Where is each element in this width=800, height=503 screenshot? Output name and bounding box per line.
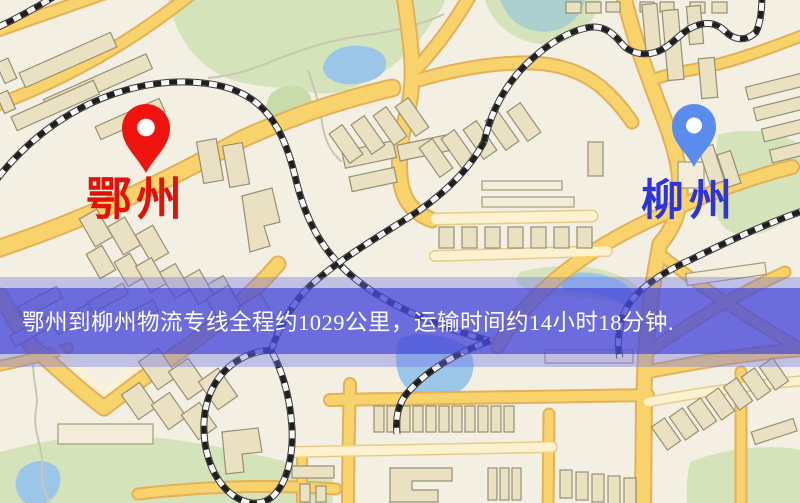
origin-city-label: 鄂州 xyxy=(86,177,186,223)
destination-city-label: 柳州 xyxy=(641,180,737,223)
map-background xyxy=(0,0,800,503)
route-banner-text: 鄂州到柳州物流专线全程约1029公里，运输时间约14小时18分钟. xyxy=(0,305,674,337)
origin-pin-hole xyxy=(137,119,155,137)
logistics-route-map: 鄂州 柳州 鄂州到柳州物流专线全程约1029公里，运输时间约14小时18分钟. xyxy=(0,0,800,503)
destination-pin-hole xyxy=(686,118,702,134)
route-banner: 鄂州到柳州物流专线全程约1029公里，运输时间约14小时18分钟. xyxy=(0,288,800,354)
